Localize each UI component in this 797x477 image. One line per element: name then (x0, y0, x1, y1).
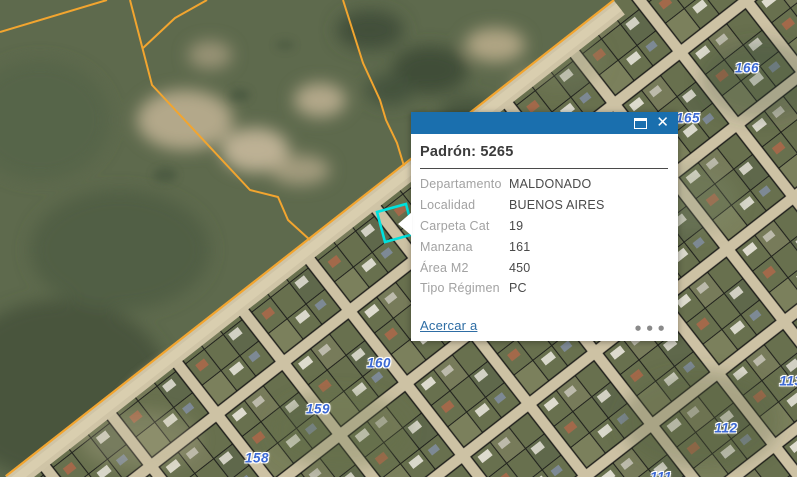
field-label: Localidad (420, 198, 509, 212)
field-row: Carpeta Cat19 (420, 216, 668, 237)
popup-title: Padrón: 5265 (420, 144, 668, 161)
field-value: BUENOS AIRES (509, 198, 605, 212)
field-value: 161 (509, 240, 530, 254)
field-row: LocalidadBUENOS AIRES (420, 195, 668, 216)
parcel-popup: ✕ Padrón: 5265 DepartamentoMALDONADOLoca… (411, 112, 678, 341)
field-label: Departamento (420, 177, 509, 191)
field-value: MALDONADO (509, 177, 591, 191)
field-label: Área M2 (420, 261, 509, 275)
popup-header[interactable]: ✕ (411, 112, 678, 134)
popup-divider (420, 168, 668, 169)
field-label: Tipo Régimen (420, 281, 509, 295)
field-row: Manzana161 (420, 236, 668, 257)
more-options-button[interactable]: ••• (633, 320, 668, 338)
field-value: 19 (509, 219, 523, 233)
zoom-to-link[interactable]: Acercar a (420, 318, 477, 333)
field-value: 450 (509, 261, 530, 275)
field-row: Área M2450 (420, 257, 668, 278)
maximize-icon[interactable] (634, 118, 647, 129)
field-row: Tipo RégimenPC (420, 278, 668, 299)
popup-pointer-arrow (398, 212, 412, 236)
field-value: PC (509, 281, 527, 295)
popup-fields: DepartamentoMALDONADOLocalidadBUENOS AIR… (420, 174, 668, 299)
popup-body: Padrón: 5265 DepartamentoMALDONADOLocali… (411, 134, 678, 299)
close-icon[interactable]: ✕ (656, 115, 669, 130)
field-row: DepartamentoMALDONADO (420, 174, 668, 195)
field-label: Carpeta Cat (420, 219, 509, 233)
field-label: Manzana (420, 240, 509, 254)
map-viewport[interactable]: 166165160159158112113111 ✕ Padrón: 5265 … (0, 0, 797, 477)
